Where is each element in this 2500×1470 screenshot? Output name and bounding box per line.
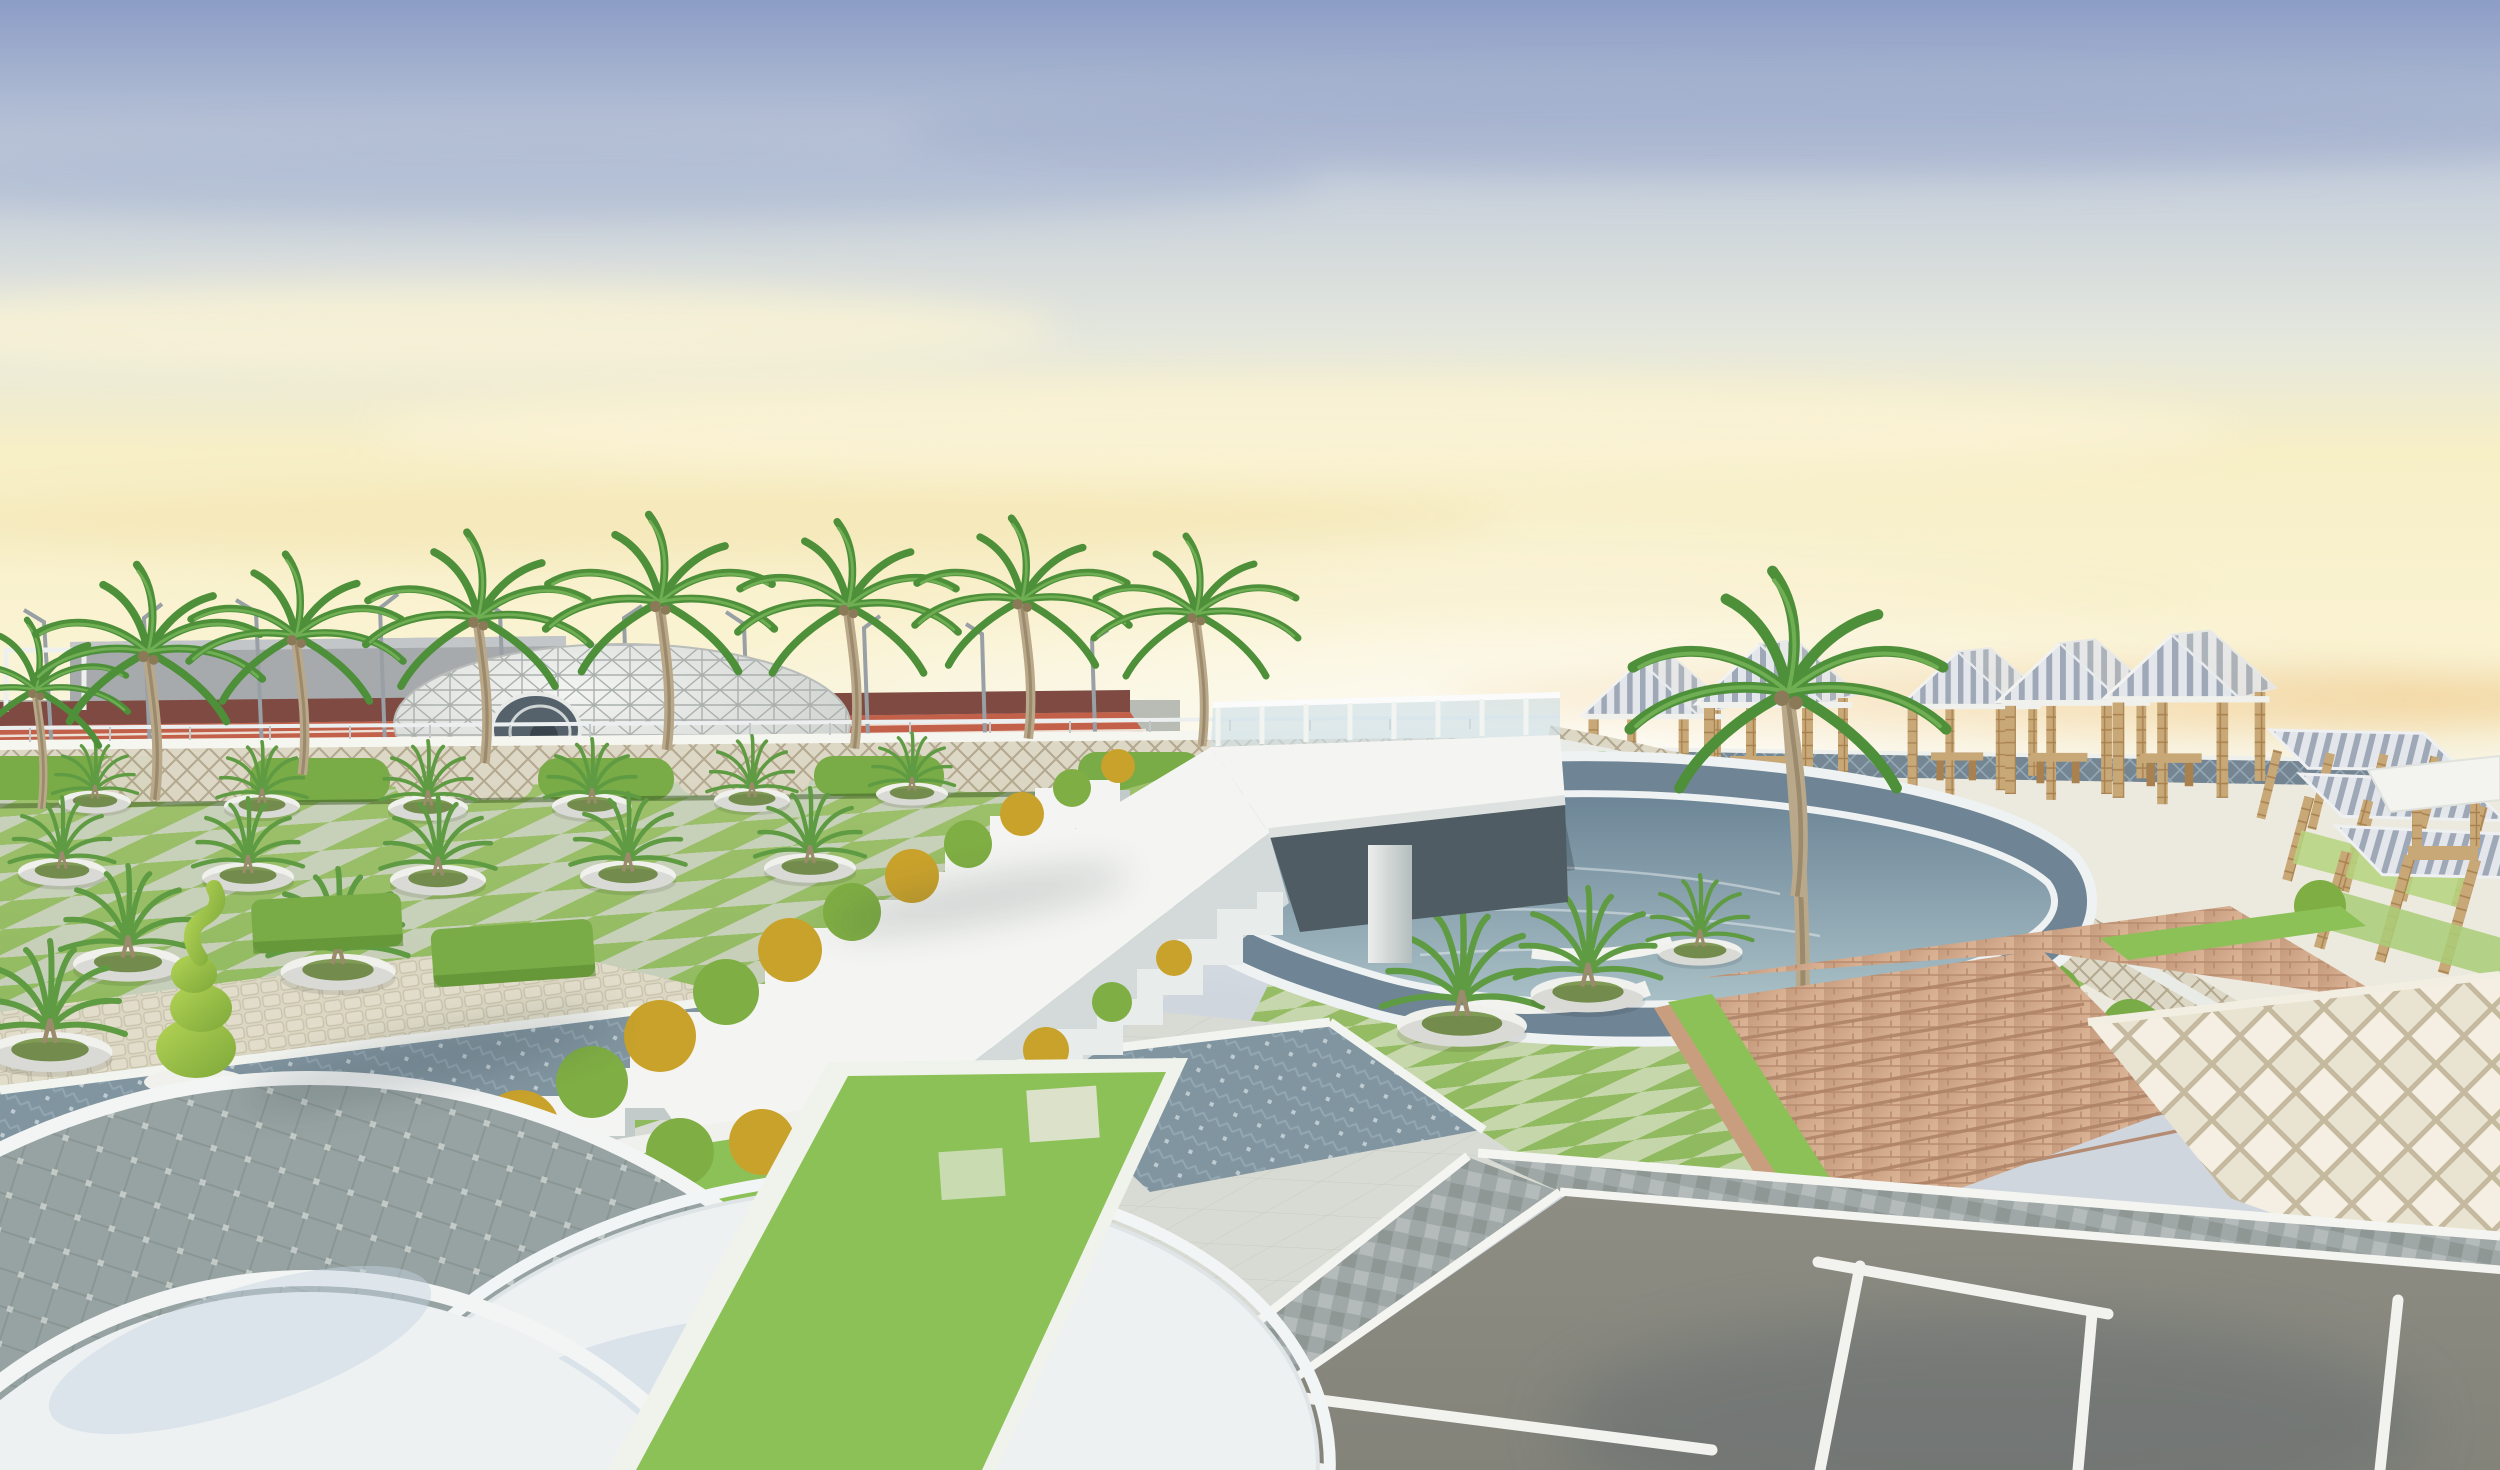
bridge-pier: [1368, 845, 1412, 963]
render-canvas: [0, 0, 2500, 1470]
